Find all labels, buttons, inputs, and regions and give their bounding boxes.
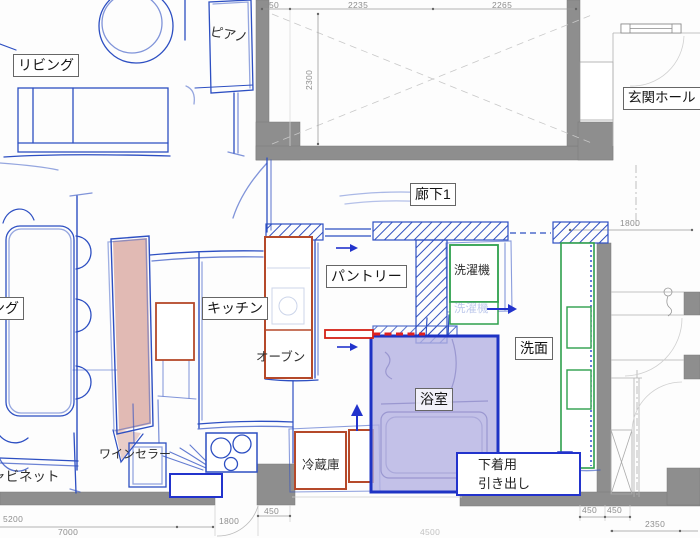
- hatched-walls: [266, 222, 608, 343]
- dim-br-450a: 450: [582, 506, 597, 515]
- underwear-drawer-line2: 引き出し: [478, 475, 577, 494]
- arrow-up-icon: [351, 404, 363, 431]
- label-oven: オーブン: [256, 351, 305, 364]
- dim-br-450b: 450: [607, 506, 622, 515]
- dim-bc-4500: 4500: [420, 528, 440, 537]
- dim-br-2350: 2350: [645, 520, 665, 529]
- underwear-drawer-box: 下着用 引き出し: [456, 452, 581, 496]
- dim-top-2265: 2265: [492, 1, 512, 10]
- kitchen-island-sketch: [108, 236, 153, 462]
- dining-table-sketch: [0, 193, 117, 471]
- piano-sketch: [185, 0, 253, 156]
- entrance-door-arc: [630, 36, 684, 86]
- label-washing-machine-ghost: 洗濯機: [454, 304, 489, 316]
- room-label-corridor1: 廊下1: [410, 183, 456, 206]
- base-counter: [170, 474, 222, 497]
- dim-door-1800: 1800: [219, 517, 239, 526]
- room-label-pantry: パントリー: [326, 265, 407, 288]
- wall-recess: [580, 62, 613, 120]
- corridor-door-sketch: [233, 158, 432, 232]
- arrow-right-icon: [337, 343, 358, 351]
- dim-left-5200: 5200: [3, 515, 23, 524]
- living-table-sketch: [99, 0, 173, 63]
- sliding-door: [621, 24, 681, 33]
- room-label-dining-clipped: ング: [0, 297, 24, 320]
- underwear-drawer-line1: 下着用: [478, 456, 577, 475]
- label-refrigerator: 冷蔵庫: [302, 459, 340, 472]
- arrow-right-icon: [336, 244, 358, 252]
- dim-bottom-7000: 7000: [58, 528, 78, 537]
- room-label-washroom: 洗面: [515, 337, 553, 360]
- dim-door-450: 450: [264, 507, 279, 516]
- room-label-bathroom: 浴室: [415, 388, 453, 411]
- fridge-side-box: [349, 430, 373, 482]
- cooktop: [206, 433, 257, 472]
- room-label-kitchen: キッチン: [202, 297, 268, 320]
- dim-right-1800: 1800: [620, 219, 640, 228]
- counter-element: [156, 303, 194, 360]
- dim-top-450: 450: [264, 1, 279, 10]
- dim-room-2300: 2300: [305, 70, 314, 90]
- floorplan-canvas: リビング 玄関ホール 廊下1 パントリー キッチン 浴室 洗面 ング ピアノ オ…: [0, 0, 700, 538]
- label-wine-cellar: ワインセラー: [99, 448, 171, 460]
- label-washing-machine: 洗濯機: [454, 264, 490, 276]
- room-label-living: リビング: [13, 54, 79, 77]
- dim-top-2235: 2235: [348, 1, 368, 10]
- label-cabinet-clipped: ャビネット: [0, 470, 60, 484]
- room-label-entrance-hall: 玄関ホール: [623, 87, 700, 110]
